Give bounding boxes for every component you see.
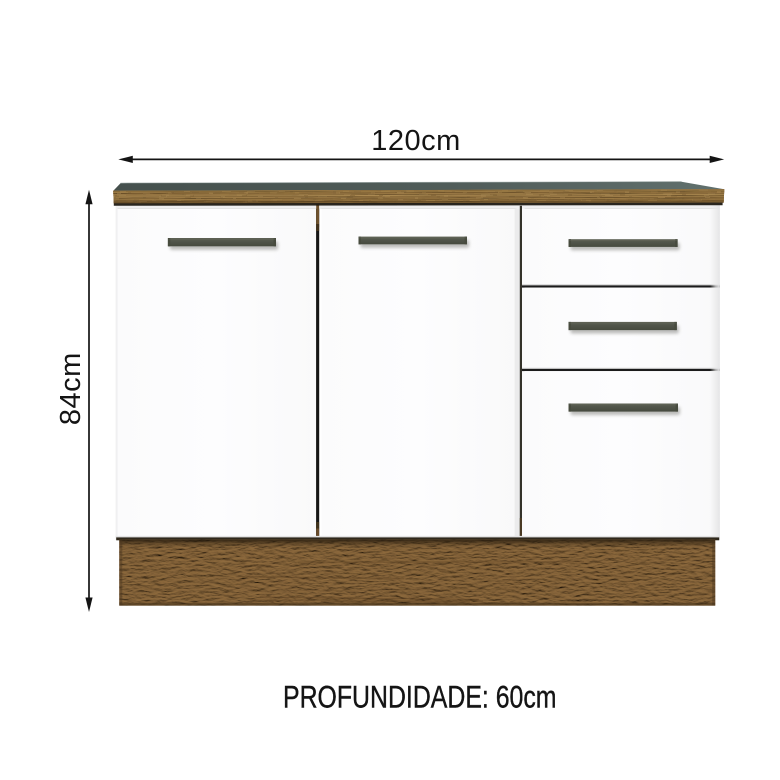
svg-text:PROFUNDIDADE: 60cm: PROFUNDIDADE: 60cm xyxy=(283,679,557,715)
svg-text:84cm: 84cm xyxy=(55,352,87,425)
svg-text:120cm: 120cm xyxy=(371,125,461,157)
